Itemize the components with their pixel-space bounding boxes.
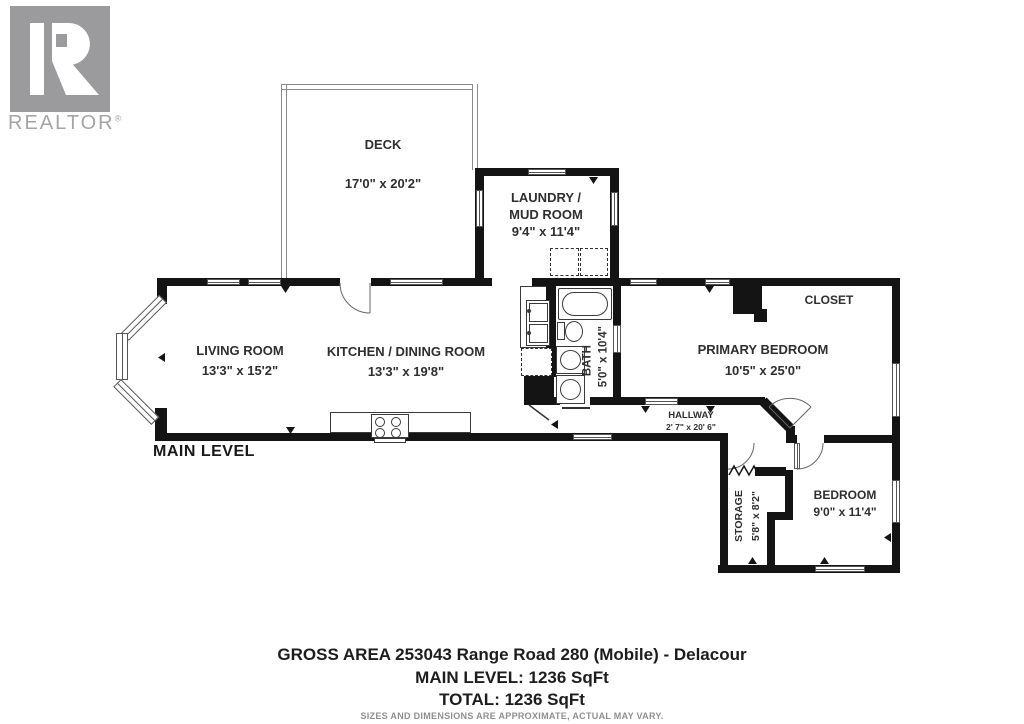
- living-room-dims: 13'3" x 15'2": [165, 364, 315, 379]
- bath-dims: 5'0" x 10'4": [597, 312, 610, 402]
- closet-label: CLOSET: [779, 294, 879, 308]
- door-swing-overlay: [0, 0, 1024, 724]
- kitchen-label: KITCHEN / DINING ROOM: [306, 345, 506, 360]
- hallway-label: HALLWAY: [641, 411, 741, 422]
- hallway-dims: 2' 7" x 20' 6": [641, 423, 741, 433]
- primary-door-arc: [769, 398, 811, 407]
- footer-main-level-area: MAIN LEVEL: 1236 SqFt: [0, 668, 1024, 688]
- laundry-dims: 9'4" x 11'4": [486, 225, 606, 240]
- laundry-label-line2: MUD ROOM: [486, 208, 606, 223]
- deck-label: DECK: [323, 138, 443, 153]
- floor-plan-canvas: REALTOR®: [0, 0, 1024, 724]
- footer-disclaimer: SIZES AND DIMENSIONS ARE APPROXIMATE, AC…: [0, 711, 1024, 721]
- bath-label: BATH: [581, 326, 594, 396]
- storage-label: STORAGE: [733, 474, 745, 558]
- bedroom-label: BEDROOM: [795, 489, 895, 503]
- storage-dims: 5'8" x 8'2": [750, 474, 762, 558]
- laundry-label-line1: LAUNDRY /: [486, 191, 606, 206]
- living-room-label: LIVING ROOM: [165, 344, 315, 359]
- level-label: MAIN LEVEL: [153, 443, 255, 461]
- bath-door-leaf: [529, 405, 549, 420]
- footer-address: GROSS AREA 253043 Range Road 280 (Mobile…: [0, 645, 1024, 665]
- bedroom-dims: 9'0" x 11'4": [795, 506, 895, 520]
- kitchen-dims: 13'3" x 19'8": [306, 365, 506, 380]
- deck-dims: 17'0" x 20'2": [323, 177, 443, 192]
- bedroom-door-arc: [797, 443, 823, 469]
- footer-total-area: TOTAL: 1236 SqFt: [0, 690, 1024, 710]
- deck-door-arc: [340, 283, 370, 313]
- primary-bedroom-label: PRIMARY BEDROOM: [663, 343, 863, 358]
- hall-door-arc: [728, 443, 754, 469]
- primary-bedroom-dims: 10'5" x 25'0": [663, 364, 863, 379]
